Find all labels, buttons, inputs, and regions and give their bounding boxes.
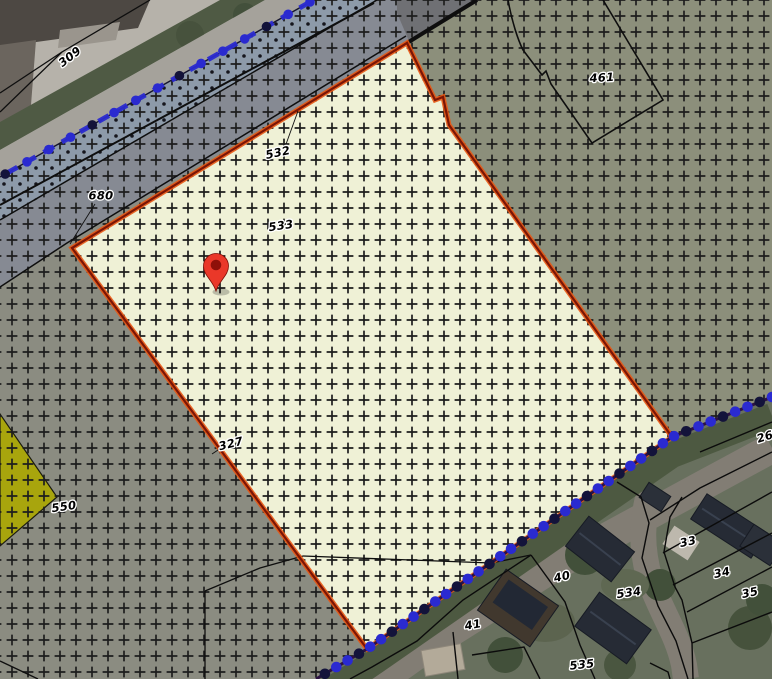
- map-viewport[interactable]: 309 680 532 533 461 327 550 26 33 34 35 …: [0, 0, 772, 679]
- map-canvas[interactable]: 309 680 532 533 461 327 550 26 33 34 35 …: [0, 0, 772, 679]
- parcel-label-461: 461: [588, 70, 615, 85]
- parcel-label-535: 535: [569, 656, 595, 673]
- parcel-label-680: 680: [89, 189, 114, 203]
